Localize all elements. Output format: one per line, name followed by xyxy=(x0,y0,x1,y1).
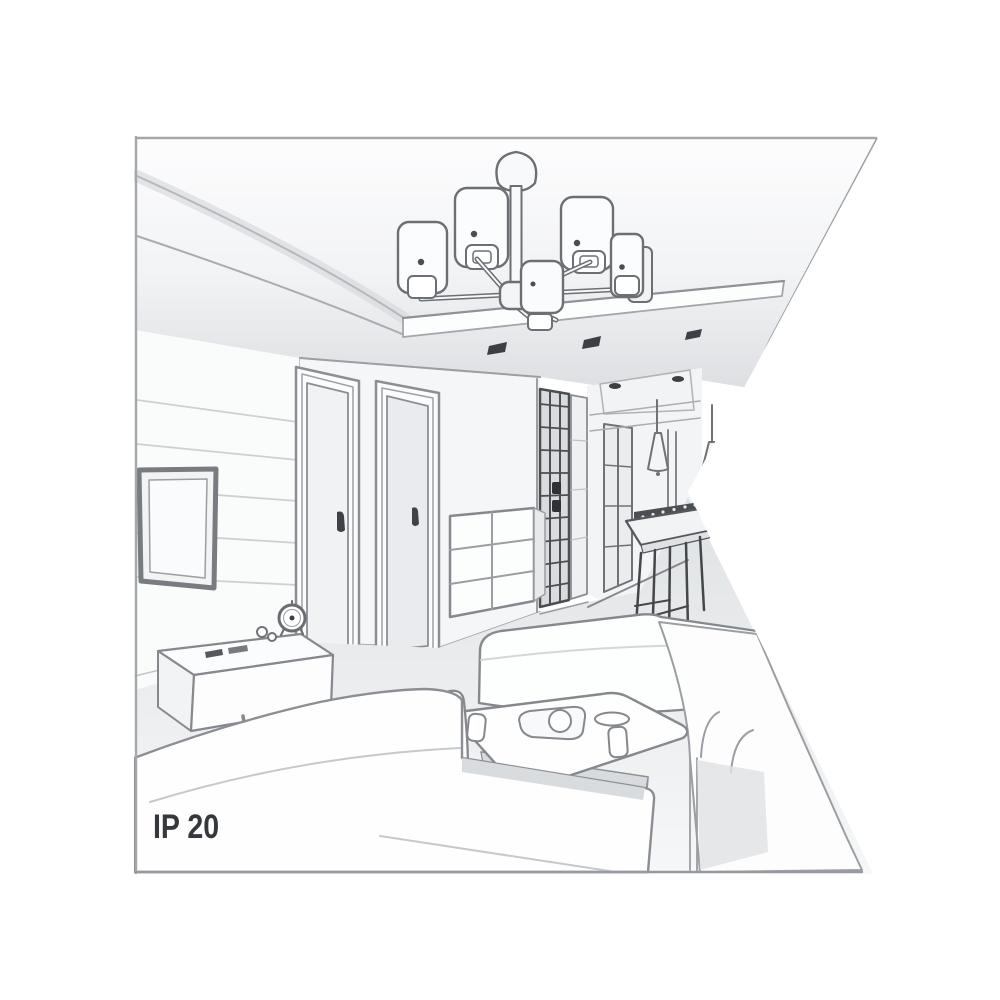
ip-rating-label: IP 20 xyxy=(153,808,219,846)
lamp-shade xyxy=(455,188,508,269)
cup xyxy=(467,713,487,742)
teapot xyxy=(549,710,571,732)
door-right xyxy=(376,381,439,654)
tv-screen xyxy=(149,479,207,578)
chest-of-drawers xyxy=(450,508,545,617)
side-panel xyxy=(571,395,587,599)
right-sofa xyxy=(659,622,862,872)
plate xyxy=(595,713,629,726)
partition-handle xyxy=(552,500,561,512)
partition-handle xyxy=(552,482,561,494)
hallway-window xyxy=(604,424,632,592)
lamp-shade xyxy=(611,234,643,297)
door-left xyxy=(296,367,359,651)
bottle xyxy=(608,726,628,757)
lamp-shade xyxy=(398,222,447,298)
sofa-side-shade xyxy=(697,760,768,870)
product-image-canvas: IP 20 xyxy=(0,0,1000,1000)
interior-sketch-illustration: IP 20 xyxy=(0,0,1000,1000)
back-wall xyxy=(296,358,540,654)
door-right-leaf xyxy=(387,396,428,650)
